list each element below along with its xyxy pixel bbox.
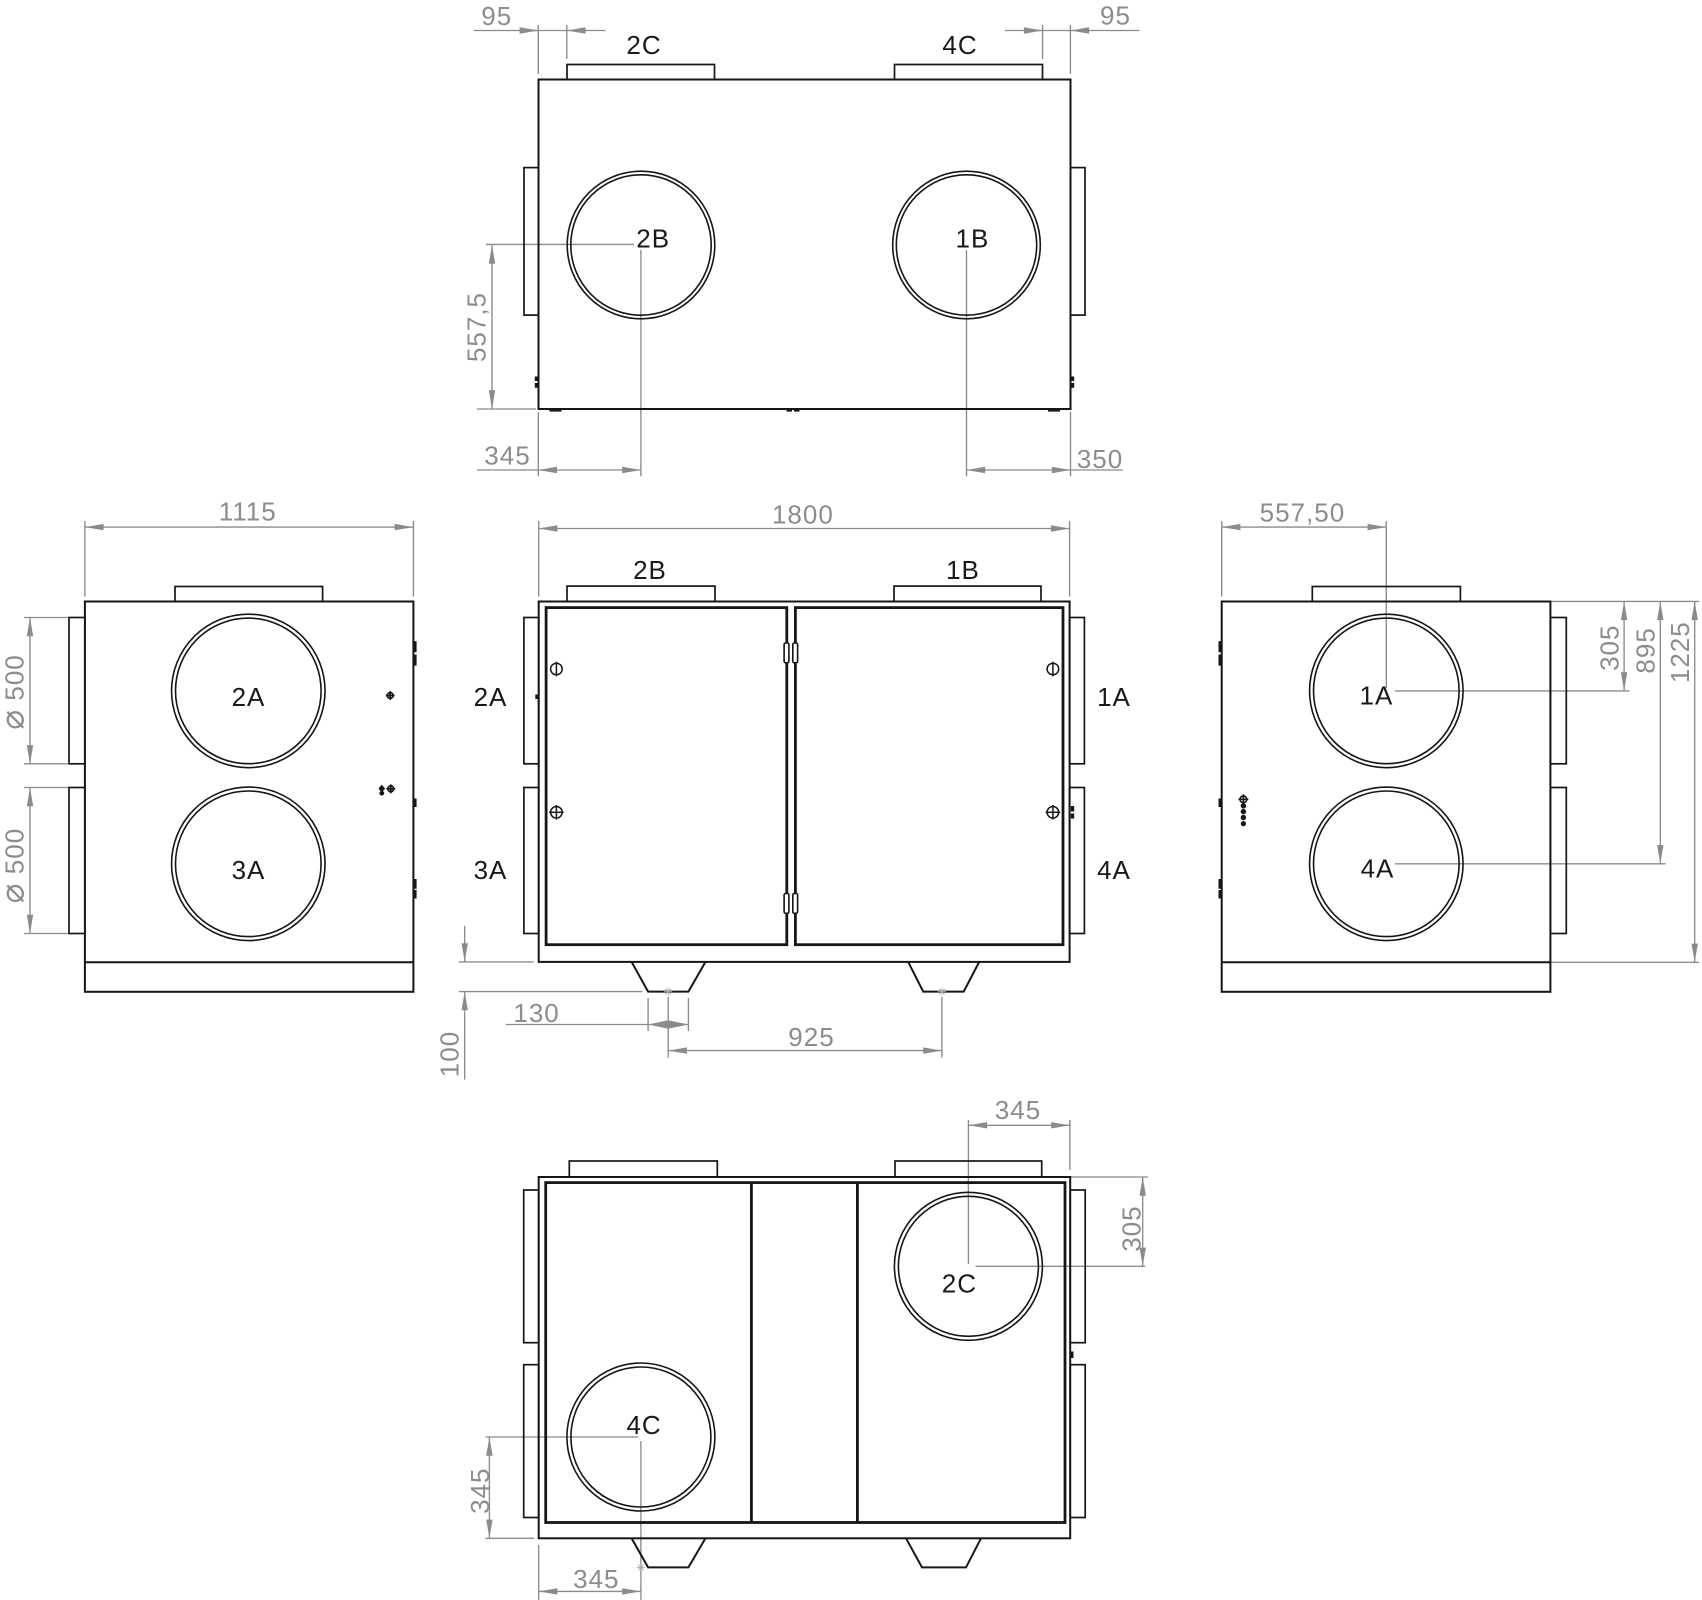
svg-text:4C: 4C [626,1410,661,1440]
svg-text:2C: 2C [942,1268,977,1298]
svg-text:100: 100 [434,1031,464,1077]
svg-text:1B: 1B [956,224,990,254]
svg-text:95: 95 [1100,1,1131,31]
svg-text:⌀ 500: ⌀ 500 [0,654,30,729]
svg-text:305: 305 [1117,1205,1147,1251]
svg-text:895: 895 [1631,627,1661,673]
svg-text:345: 345 [484,441,530,471]
svg-text:345: 345 [465,1468,495,1514]
svg-text:2A: 2A [232,682,266,712]
svg-text:4A: 4A [1361,854,1395,884]
svg-text:557,5: 557,5 [462,292,492,362]
svg-text:305: 305 [1595,625,1625,671]
svg-text:95: 95 [481,1,512,31]
svg-text:4C: 4C [942,30,977,60]
svg-text:1115: 1115 [219,497,277,527]
svg-text:925: 925 [788,1022,834,1052]
svg-text:1B: 1B [946,555,980,585]
svg-text:3A: 3A [474,855,508,885]
svg-text:4A: 4A [1097,855,1131,885]
svg-text:⌀ 500: ⌀ 500 [0,828,30,903]
svg-text:1800: 1800 [772,500,834,530]
svg-text:557,50: 557,50 [1260,498,1346,528]
svg-text:1A: 1A [1359,681,1393,711]
svg-text:345: 345 [995,1095,1041,1125]
svg-text:2B: 2B [633,555,667,585]
svg-text:130: 130 [513,998,559,1028]
svg-text:2C: 2C [626,30,661,60]
svg-text:2B: 2B [636,224,670,254]
svg-text:2A: 2A [474,682,508,712]
svg-text:3A: 3A [232,855,266,885]
svg-text:345: 345 [573,1564,619,1594]
svg-text:1225: 1225 [1665,621,1695,683]
svg-text:1A: 1A [1097,682,1131,712]
